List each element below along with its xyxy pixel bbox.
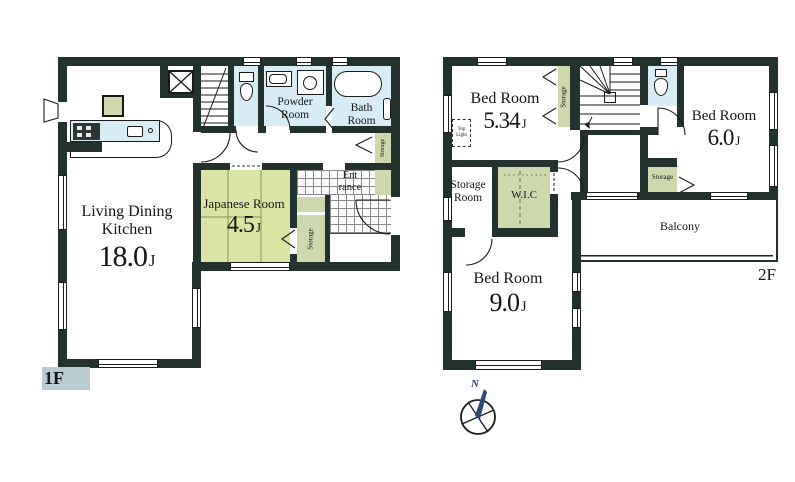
compass-north-label: N <box>471 378 479 390</box>
floorplan-canvas: Living Dining Kitchen 18.0J Japanese Roo… <box>0 0 795 482</box>
compass <box>0 0 795 482</box>
